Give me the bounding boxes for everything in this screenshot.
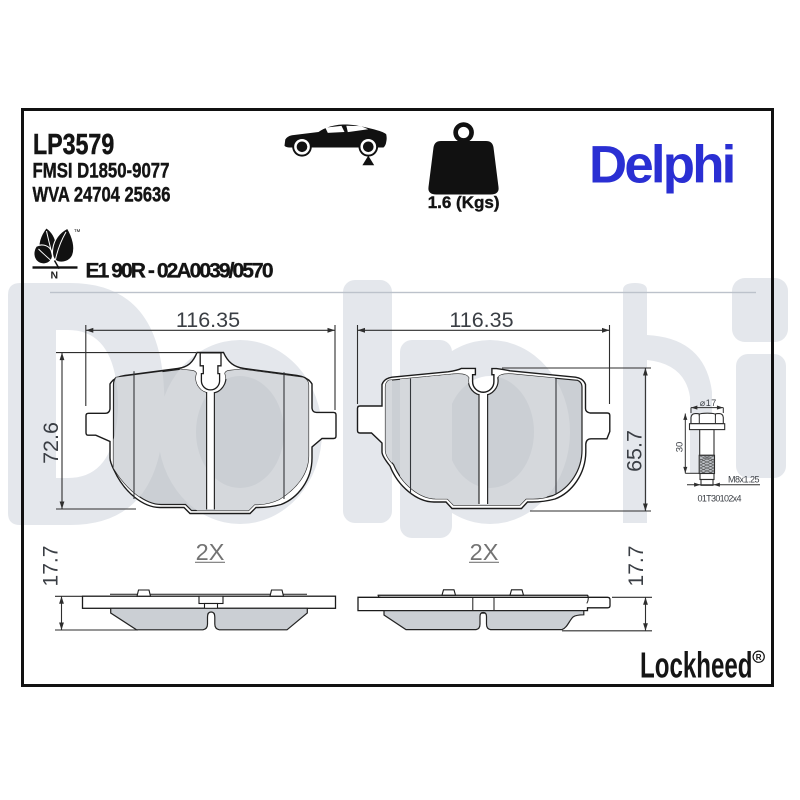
svg-text:FMSI D1850-9077: FMSI D1850-9077 <box>33 160 170 183</box>
svg-text:65.7: 65.7 <box>623 430 647 472</box>
svg-text:E1 90R - 02A0039/0570: E1 90R - 02A0039/0570 <box>86 260 274 283</box>
svg-text:⌀17: ⌀17 <box>700 398 717 408</box>
svg-text:17.7: 17.7 <box>40 546 63 587</box>
svg-text:01T30102x4: 01T30102x4 <box>698 494 742 504</box>
svg-text:72.6: 72.6 <box>39 422 63 464</box>
svg-text:M8x1.25: M8x1.25 <box>728 474 760 484</box>
svg-text:Lockheed: Lockheed <box>640 646 753 686</box>
svg-text:Delphi: Delphi <box>589 136 734 195</box>
svg-text:N: N <box>51 270 59 282</box>
svg-text:R: R <box>756 653 762 662</box>
svg-text:116.35: 116.35 <box>176 308 240 332</box>
svg-text:30: 30 <box>675 442 686 453</box>
svg-text:WVA 24704 25636: WVA 24704 25636 <box>33 184 171 208</box>
svg-text:™: ™ <box>74 229 81 236</box>
svg-text:17.7: 17.7 <box>625 546 648 587</box>
svg-text:2X: 2X <box>196 539 225 565</box>
svg-text:116.35: 116.35 <box>449 308 513 332</box>
svg-text:1.6 (Kgs): 1.6 (Kgs) <box>428 193 500 212</box>
svg-text:2X: 2X <box>470 539 499 565</box>
svg-text:LP3579: LP3579 <box>33 127 114 160</box>
